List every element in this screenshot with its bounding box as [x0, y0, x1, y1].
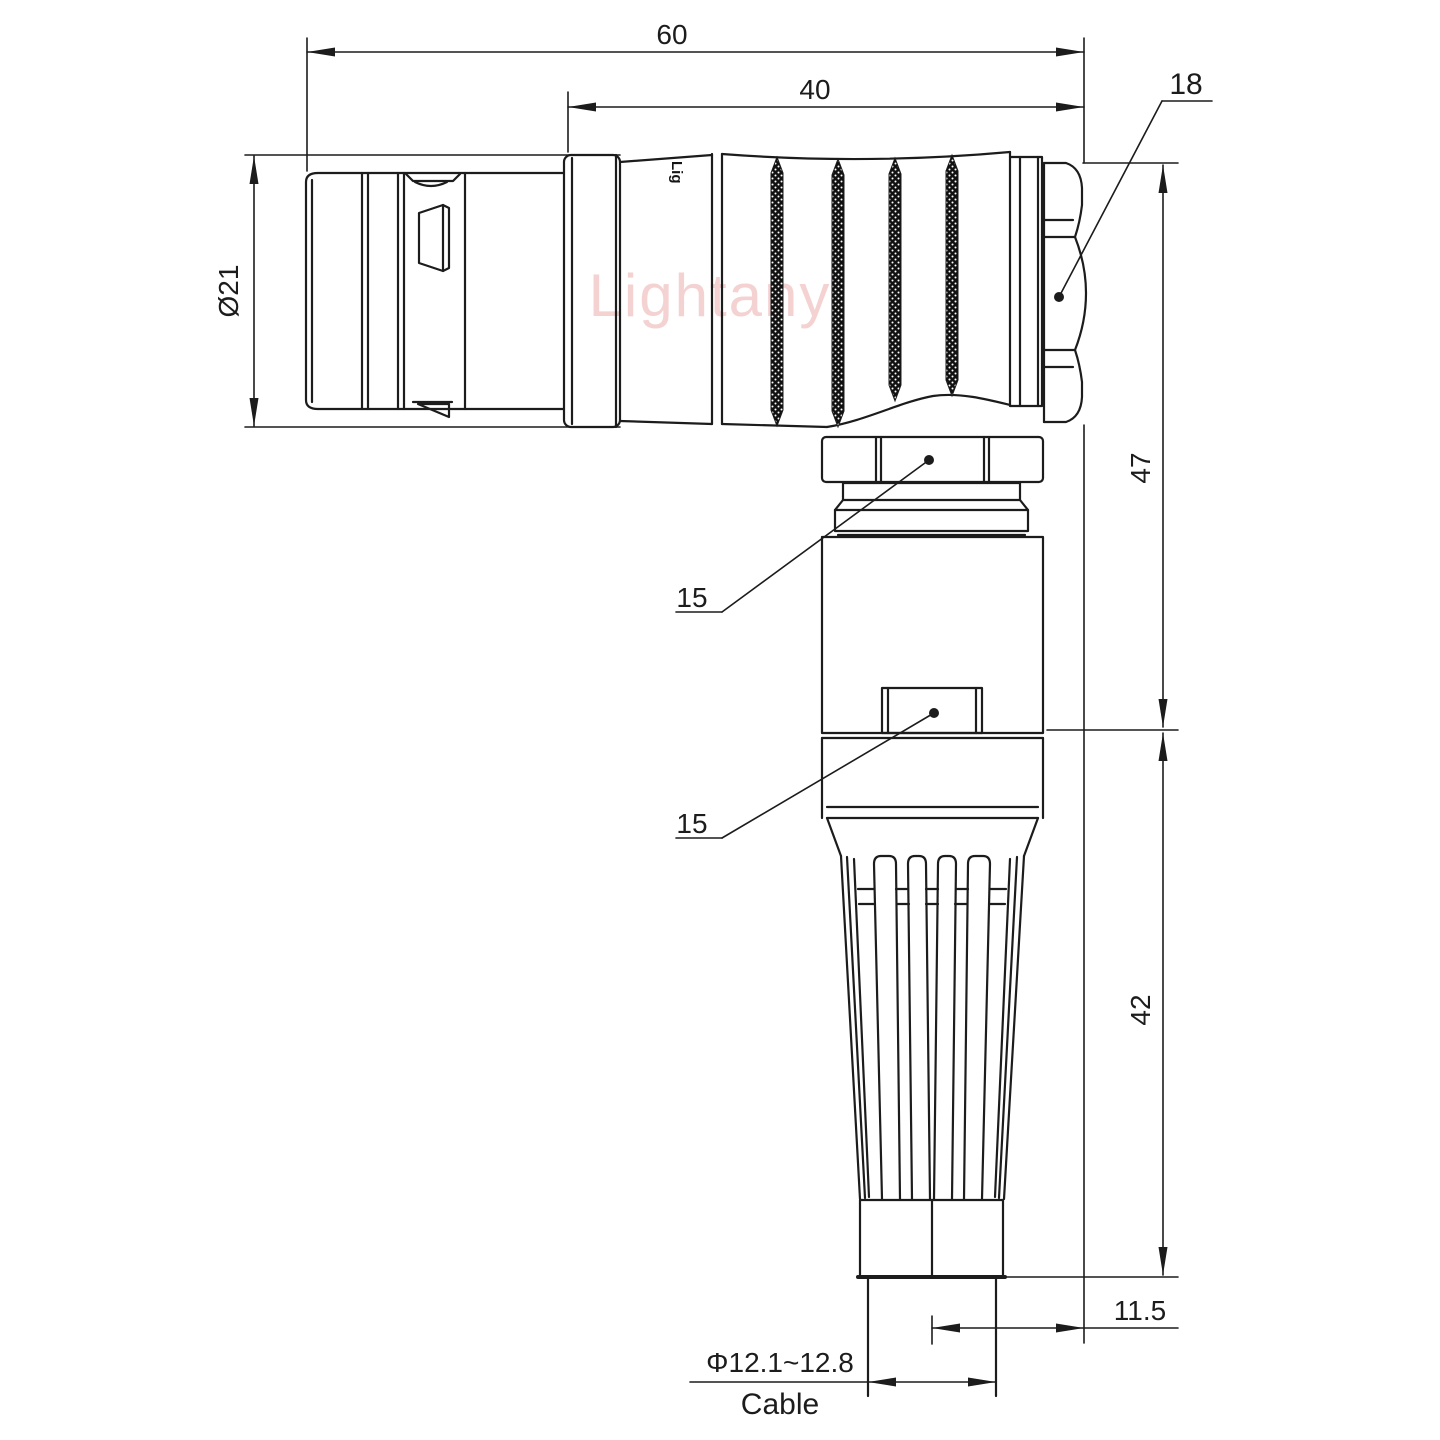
knurl-strip — [832, 159, 844, 427]
technical-drawing-page: Lightany Li — [0, 0, 1440, 1440]
dim-label-d21: Ø21 — [213, 265, 244, 318]
dim-label-47: 47 — [1125, 452, 1156, 483]
dim-label-18: 18 — [1169, 68, 1202, 101]
knurl-strip — [771, 157, 783, 426]
hex-back-nut — [1044, 163, 1086, 422]
dim-label-15-housing: 15 — [676, 808, 707, 839]
dim-axis-offset: 11.5 — [932, 425, 1178, 1344]
cable-clamp-cap — [858, 1200, 1005, 1277]
dim-label-15-nut: 15 — [676, 582, 707, 613]
leader-housing-15: 15 — [676, 708, 939, 839]
dim-label-11-5: 11.5 — [1114, 1295, 1166, 1326]
rear-cap-band — [1010, 152, 1042, 406]
dim-label-60: 60 — [656, 19, 687, 50]
brand-engraving: Lig — [668, 161, 685, 184]
strain-relief — [827, 818, 1038, 1199]
dim-label-42: 42 — [1125, 994, 1156, 1025]
front-plug-shell — [306, 173, 564, 417]
watermark-text: Lightany — [589, 262, 832, 329]
dim-rear-length: 40 — [568, 74, 1084, 152]
cable-word-label: Cable — [741, 1388, 819, 1421]
vertical-housing — [822, 537, 1043, 818]
connector-drawing: Lightany Li — [0, 0, 1440, 1440]
dim-overall-length: 60 — [307, 19, 1084, 171]
neck-rings — [835, 483, 1028, 535]
dim-front-diameter: Ø21 — [213, 155, 620, 427]
dim-upper-height: 47 — [1047, 163, 1178, 730]
connector-body: Lig — [306, 152, 1086, 1396]
dim-label-40: 40 — [799, 74, 830, 105]
knurl-strip — [946, 155, 958, 396]
keyway-window — [419, 205, 449, 271]
leader-backnut-18: 18 — [1054, 68, 1212, 302]
dim-cable-diameter: Φ12.1~12.8 Cable — [690, 1347, 996, 1421]
dim-label-cable-diameter: Φ12.1~12.8 — [706, 1347, 854, 1378]
knurl-strip — [889, 158, 901, 401]
dim-lower-height: 42 — [1005, 733, 1178, 1277]
